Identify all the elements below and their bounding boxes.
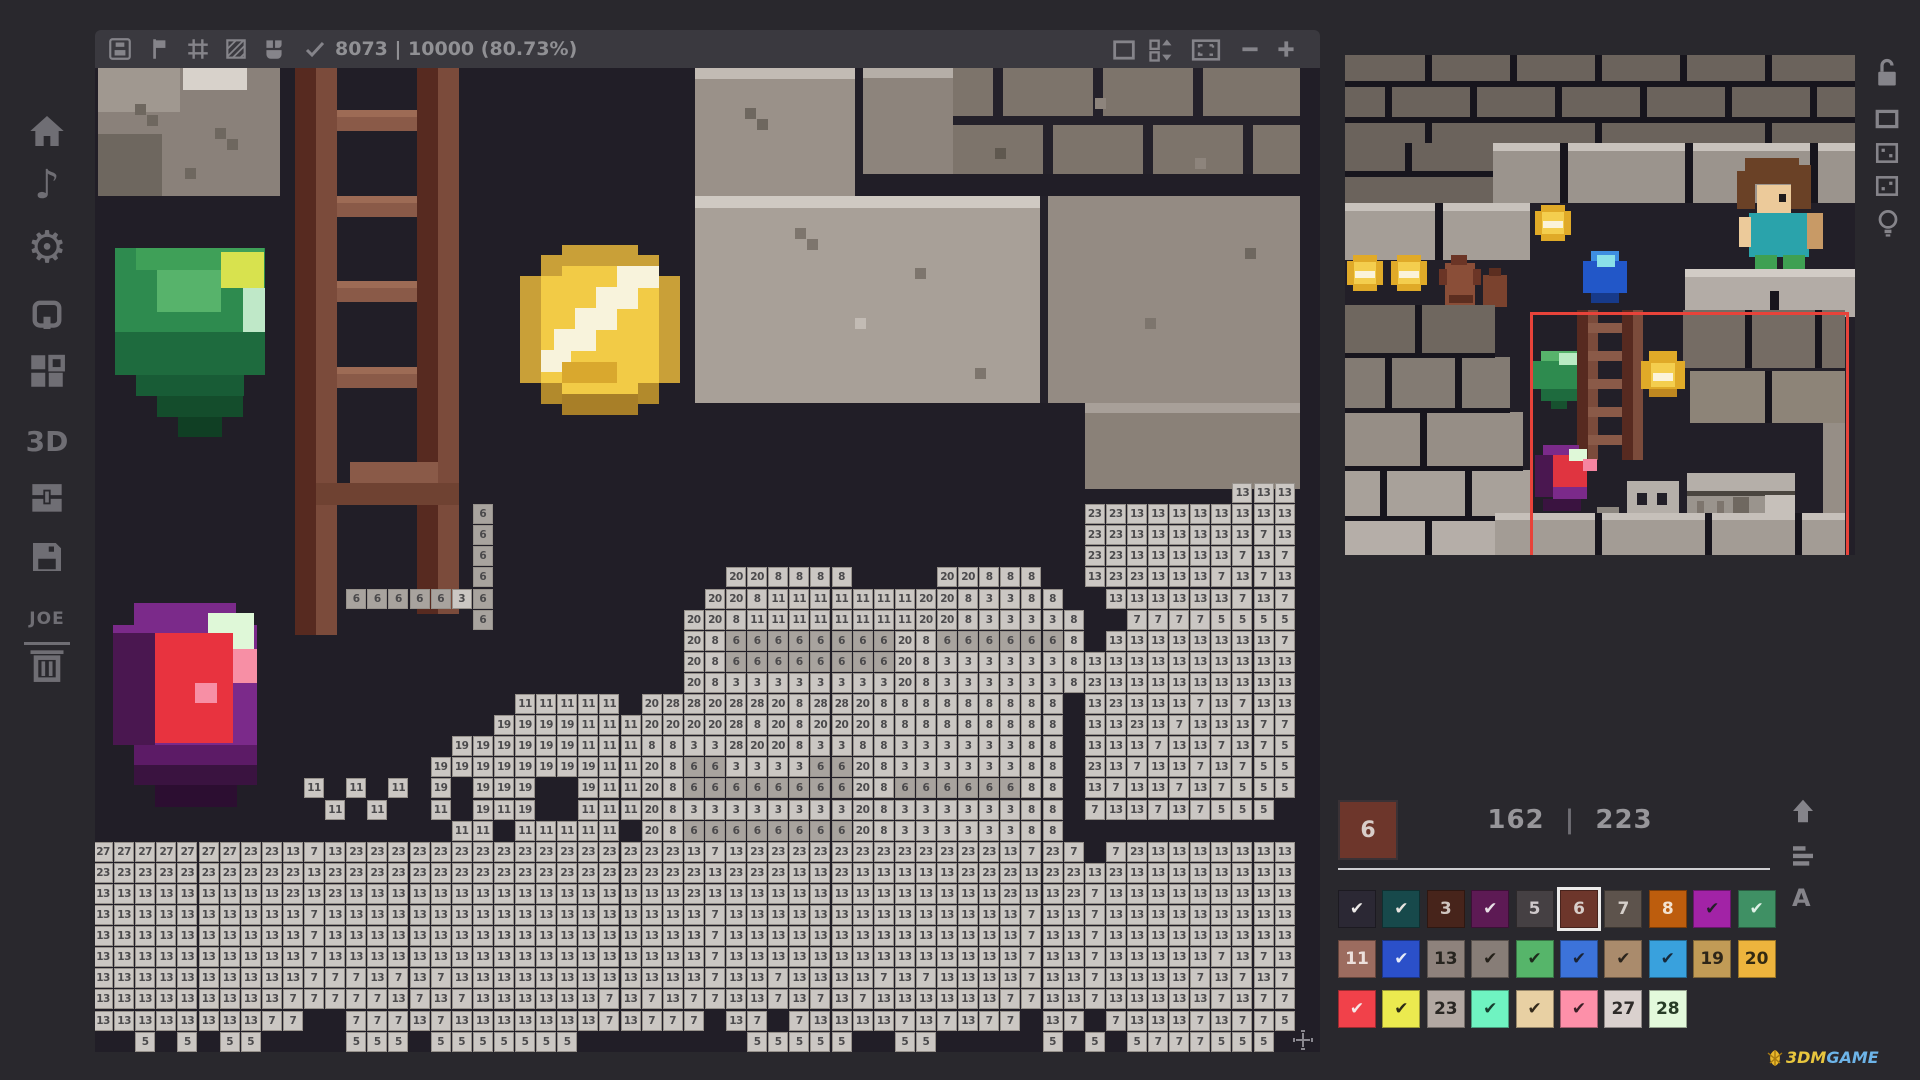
grid-cell[interactable]: 23 <box>663 863 683 883</box>
grid-cell[interactable]: 5 <box>1043 1032 1063 1052</box>
grid-cell[interactable]: 11 <box>578 800 598 820</box>
grid-cell[interactable]: 5 <box>135 1032 155 1052</box>
grid-cell[interactable]: 23 <box>1106 504 1126 524</box>
grid-cell[interactable]: 6 <box>726 631 746 651</box>
grid-cell[interactable]: 13 <box>241 905 261 925</box>
grid-cell[interactable]: 13 <box>578 884 598 904</box>
grid-cell[interactable]: 13 <box>1064 926 1084 946</box>
grid-cell[interactable]: 6 <box>346 589 366 609</box>
grid-cell[interactable]: 13 <box>1232 905 1252 925</box>
palette-swatch-2[interactable]: ✔ <box>1382 890 1420 928</box>
grid-cell[interactable]: 13 <box>832 989 852 1009</box>
grid-cell[interactable]: 3 <box>916 800 936 820</box>
palette-swatch-24[interactable]: ✔ <box>1471 990 1509 1028</box>
grid-cell[interactable]: 5 <box>177 1032 197 1052</box>
grid-cell[interactable]: 6 <box>832 757 852 777</box>
grid-cell[interactable]: 8 <box>1043 736 1063 756</box>
grid-cell[interactable]: 13 <box>95 884 113 904</box>
grid-cell[interactable]: 13 <box>642 947 662 967</box>
grid-cell[interactable]: 7 <box>1211 778 1231 798</box>
grid-cell[interactable]: 13 <box>578 989 598 1009</box>
grid-cell[interactable]: 13 <box>367 968 387 988</box>
grid-cell[interactable]: 13 <box>1232 715 1252 735</box>
grid-cell[interactable]: 11 <box>810 589 830 609</box>
grid-cell[interactable]: 7 <box>1254 715 1274 735</box>
grid-cell[interactable]: 7 <box>684 989 704 1009</box>
grid-cell[interactable]: 13 <box>241 884 261 904</box>
grid-cell[interactable]: 13 <box>177 905 197 925</box>
grid-cell[interactable]: 13 <box>367 905 387 925</box>
grid-cell[interactable]: 13 <box>1064 905 1084 925</box>
save-icon[interactable] <box>107 36 133 62</box>
grid-cell[interactable]: 7 <box>1190 968 1210 988</box>
grid-cell[interactable]: 13 <box>156 905 176 925</box>
grid-cell[interactable]: 6 <box>1000 631 1020 651</box>
grid-cell[interactable]: 23 <box>1106 567 1126 587</box>
grid-cell[interactable]: 8 <box>853 736 873 756</box>
grid-cell[interactable]: 23 <box>536 842 556 862</box>
grid-cell[interactable]: 13 <box>726 989 746 1009</box>
grid-cell[interactable]: 6 <box>726 778 746 798</box>
grid-cell[interactable]: 13 <box>937 947 957 967</box>
grid-cell[interactable]: 20 <box>684 673 704 693</box>
grid-cell[interactable]: 13 <box>979 947 999 967</box>
grid-cell[interactable]: 13 <box>199 1011 219 1031</box>
grid-cell[interactable]: 5 <box>346 1032 366 1052</box>
grid-cell[interactable]: 7 <box>705 926 725 946</box>
grid-cell[interactable]: 19 <box>557 736 577 756</box>
grid-cell[interactable]: 23 <box>346 842 366 862</box>
grid-cell[interactable]: 20 <box>916 610 936 630</box>
grid-cell[interactable]: 3 <box>916 736 936 756</box>
grid-cell[interactable]: 20 <box>642 694 662 714</box>
grid-cell[interactable]: 13 <box>220 968 240 988</box>
grid-cell[interactable]: 11 <box>578 694 598 714</box>
grid-cell[interactable]: 7 <box>768 989 788 1009</box>
grid-cell[interactable]: 7 <box>346 1011 366 1031</box>
grid-cell[interactable]: 13 <box>874 947 894 967</box>
grid-cell[interactable]: 23 <box>431 863 451 883</box>
grid-cell[interactable]: 11 <box>536 694 556 714</box>
grid-cell[interactable]: 13 <box>747 905 767 925</box>
grid-cell[interactable]: 11 <box>452 821 472 841</box>
grid-cell[interactable]: 19 <box>431 757 451 777</box>
grid-cell[interactable]: 5 <box>557 1032 577 1052</box>
grid-cell[interactable]: 13 <box>156 884 176 904</box>
grid-cell[interactable]: 13 <box>1148 652 1168 672</box>
grid-cell[interactable]: 13 <box>1254 863 1274 883</box>
grid-cell[interactable]: 13 <box>114 905 134 925</box>
grid-cell[interactable]: 6 <box>810 757 830 777</box>
grid-cell[interactable]: 13 <box>853 905 873 925</box>
grid-cell[interactable]: 3 <box>747 673 767 693</box>
grid-cell[interactable]: 7 <box>1148 736 1168 756</box>
grid-cell[interactable]: 23 <box>410 842 430 862</box>
grid-cell[interactable]: 7 <box>452 989 472 1009</box>
grid-cell[interactable]: 7 <box>1254 989 1274 1009</box>
grid-cell[interactable]: 13 <box>810 1011 830 1031</box>
grid-cell[interactable]: 5 <box>388 1032 408 1052</box>
grid-cell[interactable]: 7 <box>304 968 324 988</box>
grid-cell[interactable]: 13 <box>473 989 493 1009</box>
palette-swatch-4[interactable]: ✔ <box>1471 890 1509 928</box>
grid-cell[interactable]: 13 <box>979 926 999 946</box>
grid-cell[interactable]: 3 <box>726 673 746 693</box>
grid-cell[interactable]: 13 <box>1211 926 1231 946</box>
grid-cell[interactable]: 20 <box>747 567 767 587</box>
grid-cell[interactable]: 6 <box>768 778 788 798</box>
lightbulb-icon[interactable] <box>1874 208 1902 240</box>
grid-cell[interactable]: 13 <box>1169 673 1189 693</box>
grid-cell[interactable]: 11 <box>599 821 619 841</box>
grid-cell[interactable]: 13 <box>1275 905 1295 925</box>
grid-cell[interactable]: 8 <box>916 673 936 693</box>
grid-cell[interactable]: 13 <box>1232 631 1252 651</box>
grid-cell[interactable]: 11 <box>578 821 598 841</box>
grid-cell[interactable]: 11 <box>557 821 577 841</box>
grid-cell[interactable]: 13 <box>1169 1011 1189 1031</box>
palette-swatch-28[interactable]: 28 <box>1649 990 1687 1028</box>
grid-cell[interactable]: 5 <box>1275 778 1295 798</box>
grid-cell[interactable]: 5 <box>768 1032 788 1052</box>
grid-cell[interactable]: 7 <box>810 989 830 1009</box>
palette-swatch-14[interactable]: ✔ <box>1471 940 1509 978</box>
grid-cell[interactable]: 13 <box>1254 504 1274 524</box>
grid-cell[interactable]: 3 <box>1000 589 1020 609</box>
grid-cell[interactable]: 8 <box>1000 567 1020 587</box>
grid-cell[interactable]: 13 <box>1232 483 1252 503</box>
grid-cell[interactable]: 20 <box>642 821 662 841</box>
grid-cell[interactable]: 23 <box>642 842 662 862</box>
grid-cell[interactable]: 13 <box>705 863 725 883</box>
grid-cell[interactable]: 13 <box>1106 631 1126 651</box>
grid-cell[interactable]: 20 <box>895 652 915 672</box>
grid-cell[interactable]: 5 <box>789 1032 809 1052</box>
grid-cell[interactable]: 13 <box>1211 694 1231 714</box>
grid-cell[interactable]: 13 <box>642 926 662 946</box>
grid-cell[interactable]: 13 <box>1148 863 1168 883</box>
grid-cell[interactable]: 13 <box>220 926 240 946</box>
grid-cell[interactable]: 13 <box>578 968 598 988</box>
grid-cell[interactable]: 13 <box>473 884 493 904</box>
palette-swatch-8[interactable]: 8 <box>1649 890 1687 928</box>
grid-cell[interactable]: 8 <box>663 778 683 798</box>
grid-cell[interactable]: 13 <box>1190 715 1210 735</box>
grid-cell[interactable]: 28 <box>810 694 830 714</box>
grid-cell[interactable]: 8 <box>663 821 683 841</box>
grid-cell[interactable]: 7 <box>1254 525 1274 545</box>
grid-cell[interactable]: 13 <box>895 926 915 946</box>
grid-cell[interactable]: 8 <box>1021 800 1041 820</box>
grid-cell[interactable]: 3 <box>684 736 704 756</box>
grid-cell[interactable]: 6 <box>810 778 830 798</box>
grid-cell[interactable]: 23 <box>768 842 788 862</box>
grid-cell[interactable]: 7 <box>705 842 725 862</box>
grid-cell[interactable]: 8 <box>1021 778 1041 798</box>
grid-cell[interactable]: 11 <box>895 610 915 630</box>
palette-swatch-13[interactable]: 13 <box>1427 940 1465 978</box>
trash-icon[interactable] <box>24 642 70 688</box>
grid-cell[interactable]: 13 <box>1064 968 1084 988</box>
grid-cell[interactable]: 3 <box>789 757 809 777</box>
grid-cell[interactable]: 8 <box>1043 778 1063 798</box>
grid-cell[interactable]: 13 <box>1169 694 1189 714</box>
grid-cell[interactable]: 13 <box>473 968 493 988</box>
joe-label[interactable]: JOE <box>24 596 70 645</box>
grid-cell[interactable]: 8 <box>747 715 767 735</box>
grid-cell[interactable]: 13 <box>1190 884 1210 904</box>
grid-cell[interactable]: 3 <box>1043 652 1063 672</box>
viewport-rectangle[interactable] <box>1530 312 1849 555</box>
grid-cell[interactable]: 13 <box>916 926 936 946</box>
grid-cell[interactable]: 11 <box>599 757 619 777</box>
grid-cell[interactable]: 20 <box>958 567 978 587</box>
grid-cell[interactable]: 13 <box>747 968 767 988</box>
grid-cell[interactable]: 13 <box>853 947 873 967</box>
grid-cell[interactable]: 13 <box>1148 778 1168 798</box>
grid-cell[interactable]: 23 <box>388 863 408 883</box>
grid-cell[interactable]: 27 <box>114 842 134 862</box>
grid-cell[interactable]: 13 <box>177 989 197 1009</box>
grid-cell[interactable]: 3 <box>768 757 788 777</box>
grid-cell[interactable]: 3 <box>768 800 788 820</box>
grid-cell[interactable]: 6 <box>1043 631 1063 651</box>
grid-cell[interactable]: 13 <box>199 905 219 925</box>
grid-cell[interactable]: 3 <box>958 652 978 672</box>
grid-cell[interactable]: 5 <box>1232 610 1252 630</box>
grid-cell[interactable]: 13 <box>684 947 704 967</box>
palette-swatch-22[interactable]: ✔ <box>1382 990 1420 1028</box>
grid-cell[interactable]: 23 <box>367 842 387 862</box>
grid-cell[interactable]: 13 <box>1254 926 1274 946</box>
grid-cell[interactable]: 13 <box>388 884 408 904</box>
grid-cell[interactable]: 7 <box>283 1011 303 1031</box>
grid-cell[interactable]: 7 <box>1148 610 1168 630</box>
save-floppy-icon[interactable] <box>24 534 70 580</box>
grid-cell[interactable]: 6 <box>832 652 852 672</box>
grid-cell[interactable]: 13 <box>979 905 999 925</box>
grid-cell[interactable]: 13 <box>557 989 577 1009</box>
grid-cell[interactable]: 6 <box>747 778 767 798</box>
grid-cell[interactable]: 11 <box>768 589 788 609</box>
grid-cell[interactable]: 13 <box>937 905 957 925</box>
grid-cell[interactable]: 7 <box>599 1011 619 1031</box>
grid-cell[interactable]: 23 <box>473 863 493 883</box>
grid-cell[interactable]: 20 <box>705 589 725 609</box>
grid-cell[interactable]: 7 <box>1085 800 1105 820</box>
grid-cell[interactable]: 23 <box>1064 863 1084 883</box>
grid-cell[interactable]: 13 <box>1148 589 1168 609</box>
grid-cell[interactable]: 13 <box>1232 525 1252 545</box>
grid-cell[interactable]: 6 <box>705 757 725 777</box>
grid-cell[interactable]: 7 <box>1211 989 1231 1009</box>
grid-cell[interactable]: 19 <box>536 757 556 777</box>
grid-cell[interactable]: 20 <box>684 652 704 672</box>
grid-cell[interactable]: 11 <box>515 694 535 714</box>
grid-cell[interactable]: 13 <box>1190 736 1210 756</box>
grid-cell[interactable]: 13 <box>1127 589 1147 609</box>
grid-cell[interactable]: 27 <box>156 842 176 862</box>
grid-cell[interactable]: 13 <box>1275 525 1295 545</box>
grid-cell[interactable]: 27 <box>199 842 219 862</box>
grid-cell[interactable]: 7 <box>1021 842 1041 862</box>
grid-cell[interactable]: 5 <box>747 1032 767 1052</box>
grid-cell[interactable]: 13 <box>1106 989 1126 1009</box>
grid-cell[interactable]: 8 <box>789 567 809 587</box>
grid-cell[interactable]: 6 <box>473 525 493 545</box>
grid-cell[interactable]: 6 <box>789 631 809 651</box>
grid-cell[interactable]: 13 <box>262 884 282 904</box>
grid-cell[interactable]: 13 <box>220 905 240 925</box>
grid-cell[interactable]: 13 <box>916 1011 936 1031</box>
grid-cell[interactable]: 13 <box>810 905 830 925</box>
grid-cell[interactable]: 23 <box>557 863 577 883</box>
grid-cell[interactable]: 13 <box>1127 694 1147 714</box>
grid-cell[interactable]: 23 <box>979 842 999 862</box>
grid-cell[interactable]: 13 <box>1232 884 1252 904</box>
grid-cell[interactable]: 19 <box>494 736 514 756</box>
grid-cell[interactable]: 13 <box>1232 947 1252 967</box>
grid-cell[interactable]: 13 <box>346 947 366 967</box>
grid-cell[interactable]: 13 <box>536 905 556 925</box>
grid-cell[interactable]: 7 <box>789 1011 809 1031</box>
frame-crop-icon[interactable] <box>185 36 211 62</box>
grid-cell[interactable]: 13 <box>494 884 514 904</box>
grid-cell[interactable]: 5 <box>1254 610 1274 630</box>
grid-cell[interactable]: 13 <box>1127 947 1147 967</box>
grid-cell[interactable]: 6 <box>1021 631 1041 651</box>
grid-cell[interactable]: 7 <box>1190 610 1210 630</box>
grid-cell[interactable]: 28 <box>832 694 852 714</box>
grid-cell[interactable]: 8 <box>1021 736 1041 756</box>
grid-cell[interactable]: 13 <box>1064 989 1084 1009</box>
frame-toggle-icon[interactable] <box>1874 108 1900 130</box>
grid-cell[interactable]: 13 <box>177 926 197 946</box>
grid-cell[interactable]: 7 <box>1021 968 1041 988</box>
grid-cell[interactable]: 13 <box>810 968 830 988</box>
grid-cell[interactable]: 13 <box>1254 546 1274 566</box>
grid-cell[interactable]: 13 <box>853 884 873 904</box>
grid-cell[interactable]: 13 <box>1275 567 1295 587</box>
grid-cell[interactable]: 8 <box>642 736 662 756</box>
grid-cell[interactable]: 7 <box>283 989 303 1009</box>
grid-cell[interactable]: 23 <box>367 863 387 883</box>
grid-cell[interactable]: 13 <box>1254 842 1274 862</box>
grid-cell[interactable]: 13 <box>663 968 683 988</box>
grid-cell[interactable]: 23 <box>599 842 619 862</box>
grid-cell[interactable]: 8 <box>874 800 894 820</box>
grid-cell[interactable]: 13 <box>1211 589 1231 609</box>
grid-cell[interactable]: 11 <box>747 610 767 630</box>
grid-cell[interactable]: 3 <box>916 757 936 777</box>
palette-swatch-15[interactable]: ✔ <box>1516 940 1554 978</box>
grid-cell[interactable]: 13 <box>874 989 894 1009</box>
grid-cell[interactable]: 11 <box>557 694 577 714</box>
grid-cell[interactable]: 7 <box>642 1011 662 1031</box>
grid-cell[interactable]: 7 <box>431 968 451 988</box>
grid-cell[interactable]: 3 <box>979 589 999 609</box>
grid-cell[interactable]: 13 <box>1254 673 1274 693</box>
grid-cell[interactable]: 6 <box>473 610 493 630</box>
grid-cell[interactable]: 7 <box>1000 989 1020 1009</box>
grid-cell[interactable]: 23 <box>452 842 472 862</box>
paint-bucket-icon[interactable] <box>24 292 70 338</box>
palette-swatch-21[interactable]: ✔ <box>1338 990 1376 1028</box>
grid-cell[interactable]: 13 <box>1190 673 1210 693</box>
grid-cell[interactable]: 20 <box>853 694 873 714</box>
grid-cell[interactable]: 13 <box>1106 757 1126 777</box>
grid-cell[interactable]: 11 <box>832 589 852 609</box>
grid-cell[interactable]: 13 <box>1211 715 1231 735</box>
grid-cell[interactable]: 3 <box>916 821 936 841</box>
grid-cell[interactable]: 5 <box>1085 1032 1105 1052</box>
scroll-top-icon[interactable] <box>1788 796 1818 826</box>
fit-screen-icon[interactable] <box>1189 36 1223 64</box>
grid-cell[interactable]: 23 <box>283 863 303 883</box>
grid-cell[interactable]: 20 <box>705 715 725 735</box>
grid-cell[interactable]: 7 <box>1127 610 1147 630</box>
grid-cell[interactable]: 13 <box>135 926 155 946</box>
grid-cell[interactable]: 8 <box>1064 631 1084 651</box>
grid-cell[interactable]: 3 <box>958 757 978 777</box>
grid-cell[interactable]: 5 <box>536 1032 556 1052</box>
grid-cell[interactable]: 20 <box>642 757 662 777</box>
grid-cell[interactable]: 19 <box>578 757 598 777</box>
grid-cell[interactable]: 13 <box>1254 589 1274 609</box>
grid-cell[interactable]: 13 <box>114 926 134 946</box>
grid-cell[interactable]: 13 <box>1190 567 1210 587</box>
grid-cell[interactable]: 7 <box>410 989 430 1009</box>
grid-cell[interactable]: 7 <box>1169 1032 1189 1052</box>
grid-cell[interactable]: 13 <box>220 1011 240 1031</box>
grid-cell[interactable]: 19 <box>557 715 577 735</box>
grid-cell[interactable]: 6 <box>832 778 852 798</box>
grid-cell[interactable]: 7 <box>1232 1011 1252 1031</box>
grid-cell[interactable]: 13 <box>916 989 936 1009</box>
grid-cell[interactable]: 13 <box>346 905 366 925</box>
grid-cell[interactable]: 5 <box>494 1032 514 1052</box>
grid-cell[interactable]: 5 <box>895 1032 915 1052</box>
grid-cell[interactable]: 13 <box>1148 631 1168 651</box>
grid-cell[interactable]: 13 <box>536 1011 556 1031</box>
grid-cell[interactable]: 6 <box>747 631 767 651</box>
grid-cell[interactable]: 13 <box>1085 863 1105 883</box>
grid-cell[interactable]: 13 <box>1232 567 1252 587</box>
blocks-grid-icon[interactable] <box>24 348 70 394</box>
grid-cell[interactable]: 13 <box>1211 525 1231 545</box>
grid-cell[interactable]: 5 <box>1232 1032 1252 1052</box>
grid-cell[interactable]: 23 <box>958 863 978 883</box>
grid-cell[interactable]: 11 <box>874 610 894 630</box>
grid-cell[interactable]: 13 <box>1211 842 1231 862</box>
grid-cell[interactable]: 13 <box>895 947 915 967</box>
grid-cell[interactable]: 13 <box>95 968 113 988</box>
grid-cell[interactable]: 13 <box>768 905 788 925</box>
grid-cell[interactable]: 3 <box>1021 610 1041 630</box>
grid-cell[interactable]: 3 <box>895 757 915 777</box>
grid-cell[interactable]: 20 <box>768 736 788 756</box>
grid-cell[interactable]: 7 <box>895 1011 915 1031</box>
grid-cell[interactable]: 13 <box>726 947 746 967</box>
grid-cell[interactable]: 5 <box>1232 800 1252 820</box>
hatch-pattern-icon[interactable] <box>223 36 249 62</box>
grid-cell[interactable]: 23 <box>578 842 598 862</box>
grid-cell[interactable]: 11 <box>895 589 915 609</box>
grid-cell[interactable]: 11 <box>325 800 345 820</box>
grid-cell[interactable]: 13 <box>1190 905 1210 925</box>
grid-cell[interactable]: 23 <box>684 884 704 904</box>
grid-cell[interactable]: 8 <box>768 567 788 587</box>
